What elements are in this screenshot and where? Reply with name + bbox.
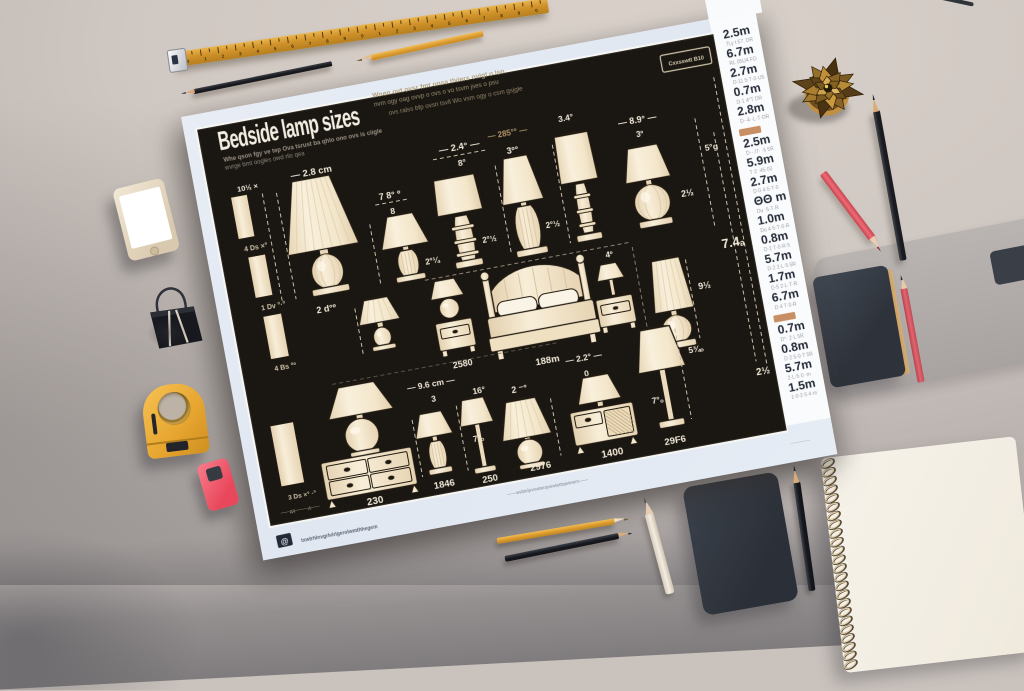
svg-text:4: 4 bbox=[430, 23, 434, 28]
svg-text:4º: 4º bbox=[605, 250, 614, 260]
svg-text:8: 8 bbox=[500, 13, 504, 18]
svg-text:3: 3 bbox=[413, 26, 417, 31]
svg-text:6: 6 bbox=[291, 43, 295, 48]
svg-text:6: 6 bbox=[465, 18, 469, 23]
svg-text:9: 9 bbox=[343, 36, 347, 41]
svg-text:3: 3 bbox=[239, 51, 243, 56]
svg-text:8: 8 bbox=[326, 38, 330, 43]
svg-text:2: 2 bbox=[221, 54, 225, 59]
svg-text:1: 1 bbox=[204, 56, 208, 61]
svg-text:1: 1 bbox=[378, 31, 382, 36]
svg-text:0: 0 bbox=[361, 33, 365, 38]
svg-text:7: 7 bbox=[483, 15, 487, 20]
svg-text:3º: 3º bbox=[635, 129, 644, 139]
svg-text:7: 7 bbox=[308, 41, 312, 46]
svg-text:5: 5 bbox=[448, 21, 452, 26]
svg-text:2: 2 bbox=[395, 28, 399, 33]
svg-text:0: 0 bbox=[535, 8, 539, 13]
svg-text:4: 4 bbox=[256, 49, 260, 54]
svg-text:9: 9 bbox=[517, 10, 521, 15]
svg-text:5: 5 bbox=[274, 46, 278, 51]
